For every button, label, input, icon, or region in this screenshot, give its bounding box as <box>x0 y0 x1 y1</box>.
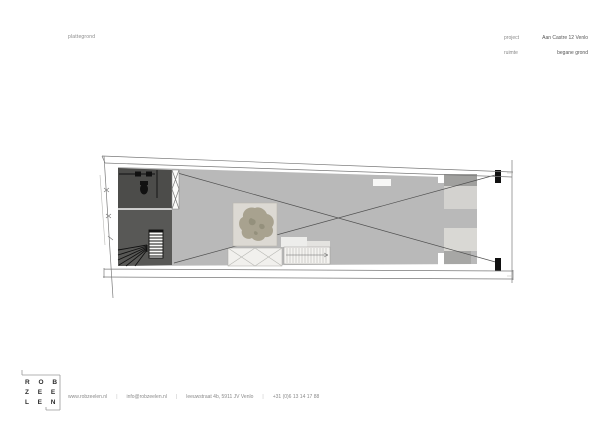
dark-rooms <box>115 168 172 266</box>
footer-contact: www.robzeelen.nl | info@robzeelen.nl | l… <box>68 394 319 400</box>
bottom-wall <box>103 268 513 280</box>
phone-text: +31 (0)6 13 14 17 88 <box>273 394 320 400</box>
main-stair <box>284 247 330 264</box>
patio <box>233 203 277 246</box>
room-label: ruimte <box>504 50 518 56</box>
room-row: ruimte begane grond <box>504 50 588 56</box>
project-label: project <box>504 35 519 41</box>
separator: | <box>116 394 117 400</box>
ladder-stair <box>149 230 163 258</box>
sheet-title: plattegrond <box>68 34 95 40</box>
logo-line: Z E E <box>25 388 61 398</box>
right-boundary <box>507 160 513 283</box>
wall-piers <box>495 170 501 271</box>
logo-line: L E N <box>25 398 61 408</box>
project-row: project Aan Castre 12 Venlo <box>504 35 588 41</box>
separator: | <box>262 394 263 400</box>
title-block: project Aan Castre 12 Venlo ruimte began… <box>504 35 588 65</box>
top-opening <box>373 179 391 186</box>
lattice-panel <box>228 248 282 266</box>
drawing-sheet: plattegrond project Aan Castre 12 Venlo … <box>0 0 600 425</box>
address-text: leeuwstraat 4b, 5911 JV Venlo <box>186 394 253 400</box>
website-link[interactable]: www.robzeelen.nl <box>68 394 107 400</box>
floor-plan-drawing <box>95 146 525 304</box>
project-value: Aan Castre 12 Venlo <box>542 35 588 41</box>
floor-plan <box>95 146 525 304</box>
room-value: begane grond <box>557 50 588 56</box>
logo-letters: R O BZ E EL E N <box>25 378 61 408</box>
separator: | <box>176 394 177 400</box>
email-link[interactable]: info@robzeelen.nl <box>127 394 167 400</box>
logo-line: R O B <box>25 378 61 388</box>
robzeelen-logo: R O BZ E EL E N <box>16 368 64 414</box>
shaft <box>172 170 179 209</box>
